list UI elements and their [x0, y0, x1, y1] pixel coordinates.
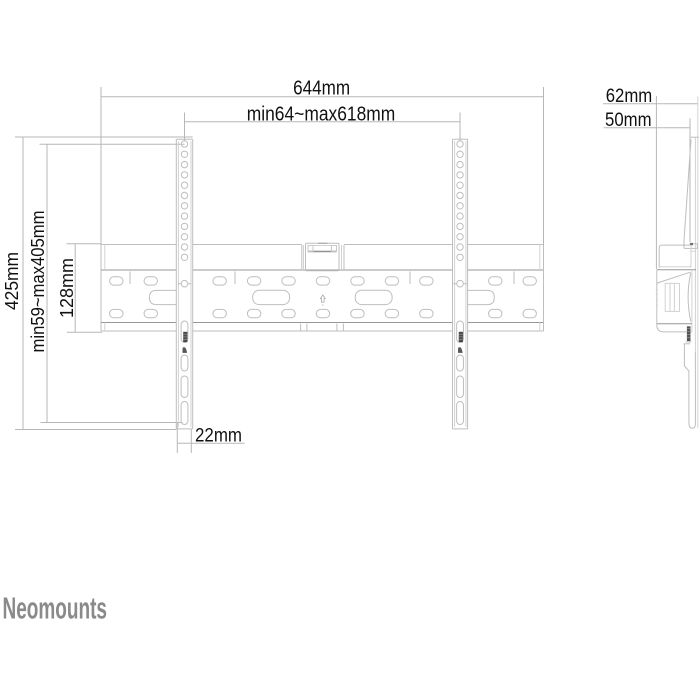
svg-text:min59~max405mm: min59~max405mm — [27, 211, 48, 353]
svg-text:22mm: 22mm — [195, 424, 242, 446]
svg-text:62mm: 62mm — [606, 85, 653, 107]
svg-text:644mm: 644mm — [293, 77, 350, 99]
svg-text:128mm: 128mm — [56, 258, 77, 318]
svg-text:Neomounts: Neomounts — [3, 592, 107, 626]
svg-text:425mm: 425mm — [1, 252, 22, 310]
svg-text:50mm: 50mm — [605, 109, 652, 131]
svg-text:min64~max618mm: min64~max618mm — [247, 103, 396, 125]
